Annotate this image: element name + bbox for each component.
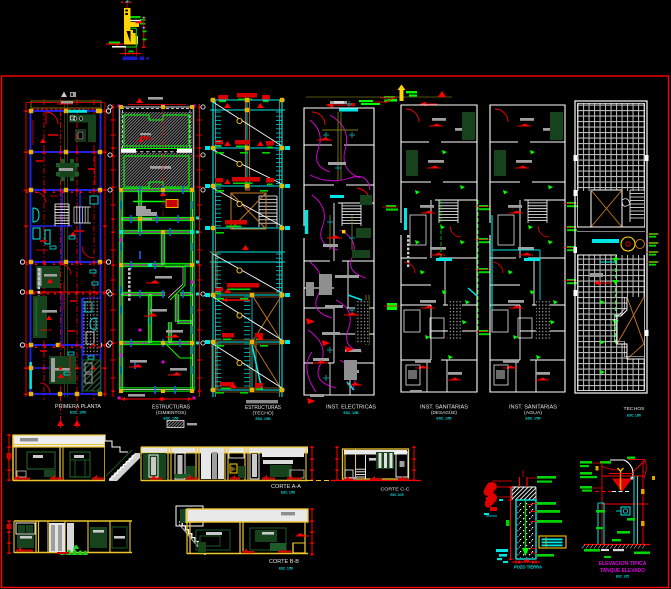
svg-text:TECHOS: TECHOS xyxy=(624,406,645,412)
svg-text:ELEVACION TIPICA: ELEVACION TIPICA xyxy=(599,561,647,567)
svg-text:TANQUE ELEVADO: TANQUE ELEVADO xyxy=(600,568,645,574)
svg-text:CORTE A-A: CORTE A-A xyxy=(271,484,302,490)
svg-text:(AGUA): (AGUA) xyxy=(524,410,543,415)
svg-text:ESC. 1/50: ESC. 1/50 xyxy=(437,417,452,421)
svg-text:INST. ELECTRICAS: INST. ELECTRICAS xyxy=(326,405,377,411)
svg-text:ESC. 1/50: ESC. 1/50 xyxy=(256,417,271,421)
svg-text:ESC. 1/50: ESC. 1/50 xyxy=(279,567,293,571)
svg-text:(TECHO): (TECHO) xyxy=(253,411,275,416)
svg-text:ESC. 1/50: ESC. 1/50 xyxy=(344,411,359,415)
svg-text:(CIMIENTOS): (CIMIENTOS) xyxy=(156,410,186,415)
svg-text:ESC. 1/50: ESC. 1/50 xyxy=(281,491,295,495)
svg-text:CORTE C-C: CORTE C-C xyxy=(381,487,411,493)
svg-text:ESC. 1/50: ESC. 1/50 xyxy=(526,417,541,421)
svg-text:POZO TIERRA: POZO TIERRA xyxy=(514,565,543,570)
svg-text:ESC. 1/25: ESC. 1/25 xyxy=(391,493,404,497)
svg-text:CORTE B-B: CORTE B-B xyxy=(269,559,300,565)
svg-text:ESC. 1/50: ESC. 1/50 xyxy=(627,414,641,418)
svg-text:(DESAGÜE): (DESAGÜE) xyxy=(431,409,457,415)
svg-text:ESC. 1/25: ESC. 1/25 xyxy=(616,575,629,579)
svg-text:ESC. 1/50: ESC. 1/50 xyxy=(70,410,87,415)
svg-text:ESC. 1/50: ESC. 1/50 xyxy=(164,417,179,421)
